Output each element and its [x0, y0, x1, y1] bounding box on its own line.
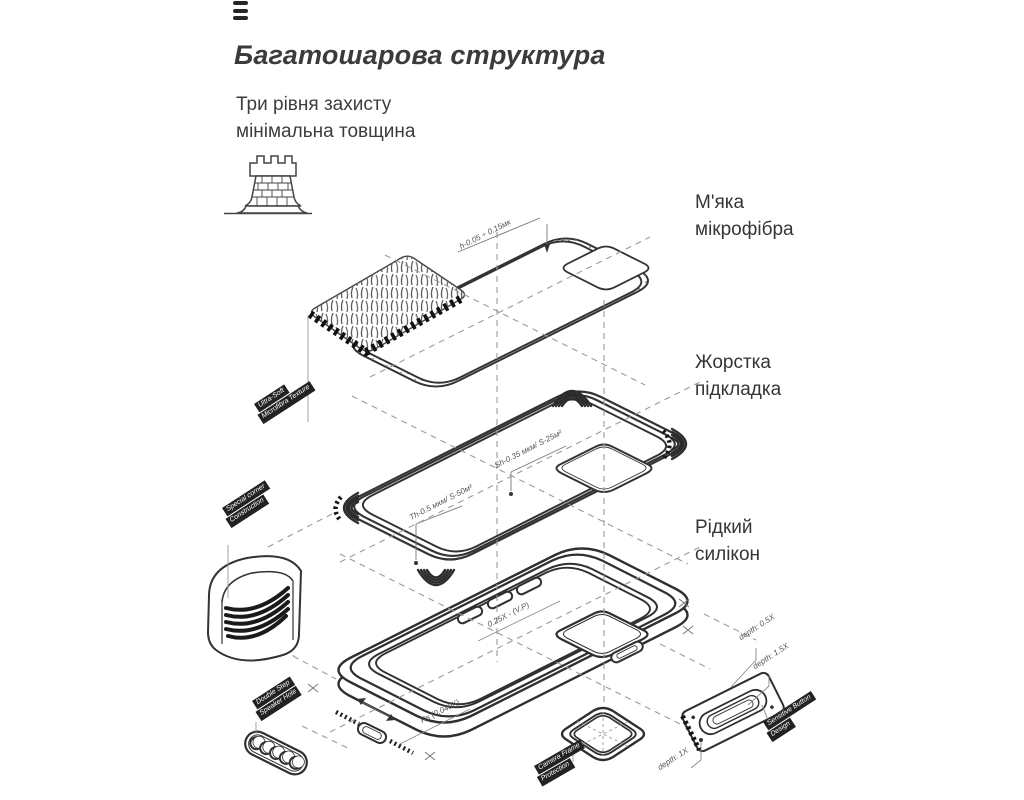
page-subtitle: Три рівня захисту мінімальна товщина [236, 91, 415, 145]
layer-label-liquid-silicone: Рідкий силікон [695, 514, 760, 568]
menu-icon [233, 1, 248, 24]
speaker-dashes [390, 741, 413, 753]
exploded-case-diagram [0, 0, 1024, 800]
corner-bumper-detail [208, 545, 301, 660]
usb-port [356, 721, 388, 745]
subtitle-line-1: Три рівня захисту [236, 91, 415, 118]
subtitle-line-2: мінімальна товщина [236, 118, 415, 145]
layer-label-microfiber: М'яка мікрофібра [695, 189, 794, 243]
castle-tower-icon [224, 156, 312, 214]
layer-2-hard-plate [347, 392, 682, 560]
button-cross-section-detail [680, 648, 786, 768]
speaker-dashes [336, 712, 359, 724]
page-title: Багатошарова структура [234, 40, 606, 71]
layer-label-hard-lining: Жорстка підкладка [695, 349, 781, 403]
speaker-holes-detail [241, 722, 311, 778]
